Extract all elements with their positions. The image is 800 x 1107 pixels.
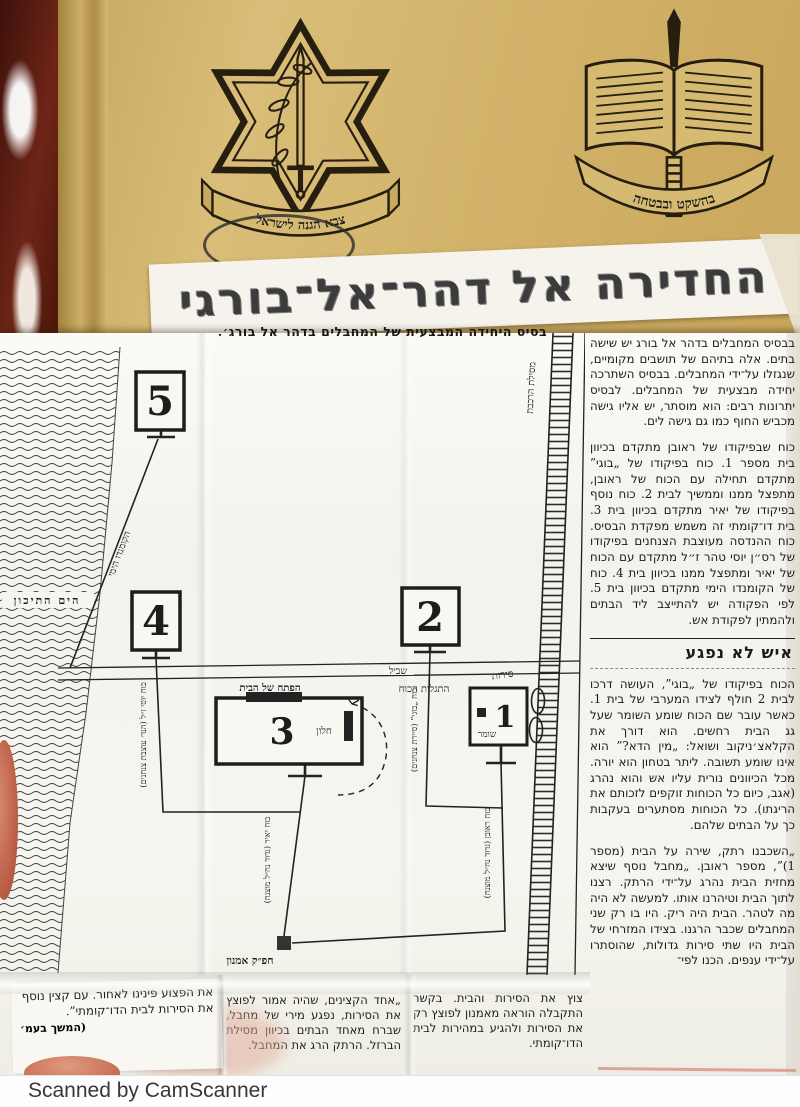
route-start-house3 [288, 764, 322, 776]
headline-text: החדירה אל דהר־אל־בורגי [178, 251, 770, 327]
open-book-icon [586, 60, 762, 155]
yossi-route-label: כוח יוסי ז״ל (הנד׳ עוצבת צנחנים) [138, 682, 148, 788]
page-spine-fold [58, 0, 108, 340]
boats-label: סירות [491, 669, 514, 683]
house-1: סירות 1 שומר [470, 669, 545, 745]
svg-text:2: 2 [416, 594, 444, 641]
house-box-2: 2 [402, 588, 459, 645]
continuation-note: (המשך בעמ׳ [20, 1018, 214, 1036]
scanned-document-page: צבא הגנה לישראל [0, 0, 800, 1107]
guard-label: שומר [478, 730, 497, 740]
ministry-emblem: בהשקט ובבטחה [558, 8, 790, 236]
horizontal-fold [0, 972, 590, 994]
house-box-5: 5 [136, 372, 184, 430]
section-heading-block: איש לא נפגע [590, 638, 795, 668]
article-paragraph: הכוח בפיקודו של „בוגי”, העושה דרכו לבית … [590, 677, 795, 834]
command-post: חפ״ק אמנון [227, 936, 291, 967]
sea-area: הים התיכון [0, 347, 120, 975]
article-paragraph: בבסיס המחבלים בדהר אל בורג יש שישה בתים.… [590, 336, 795, 430]
article-column: בבסיס המחבלים בדהר אל בורג יש שישה בתים.… [590, 336, 795, 1072]
command-post-label: חפ״ק אמנון [227, 955, 274, 967]
route-start-house1 [486, 745, 516, 763]
railway-track: מסילת הרכבת [525, 333, 573, 975]
discovery-label: התגלות הכוח [399, 683, 450, 695]
leather-binding [0, 0, 62, 340]
olive-branch-icon [264, 63, 312, 182]
house3-window [344, 711, 353, 741]
trail-label: שביל [388, 666, 408, 677]
railway-label: מסילת הרכבת [525, 361, 539, 414]
battle-map-diagram: הים התיכון מסילת הרכבת שביל [0, 333, 585, 975]
naval-route-label: הקומנדו הימי [106, 530, 133, 579]
camscanner-bar: Scanned by CamScanner [0, 1075, 800, 1107]
sword-blade-icon [668, 10, 680, 66]
house3-entrance [246, 692, 302, 702]
house-box-4: 4 [132, 592, 180, 650]
yair-route-label: כוח יאיר (גדוד נח״ל מוצנח) [262, 817, 272, 904]
bogie-route-label: כוח „בוגי” (סיירת צנחנים) [409, 688, 419, 772]
house-3: הפתח של הבית 3 חלון [216, 682, 387, 795]
diagram-border-line [575, 333, 585, 975]
svg-text:1: 1 [495, 700, 516, 735]
article-paragraph: כוח שבפיקודו של ראובן מתקדם בכיוון בית מ… [590, 440, 795, 628]
article-paragraph: „השכבנו רתק, שירה על הבית (מספר 1)”, מספ… [590, 844, 795, 970]
yair-route-line [284, 776, 305, 936]
section-heading: איש לא נפגע [590, 642, 793, 663]
svg-text:5: 5 [146, 378, 174, 425]
guard-marker [477, 708, 486, 717]
svg-text:4: 4 [142, 598, 170, 645]
reuven-route-label: כוח ראובן (גדוד נח״ל מוצנח) [482, 808, 492, 899]
reuven-route-line [292, 763, 505, 943]
sea-label: הים התיכון [14, 594, 81, 607]
svg-text:3: 3 [269, 711, 294, 753]
window-label: חלון [316, 725, 332, 737]
bottom-column-right: צוץ את הסירות והבית. בקשר התקבלה הוראה מ… [413, 991, 583, 1069]
camscanner-label: Scanned by CamScanner [28, 1079, 267, 1103]
